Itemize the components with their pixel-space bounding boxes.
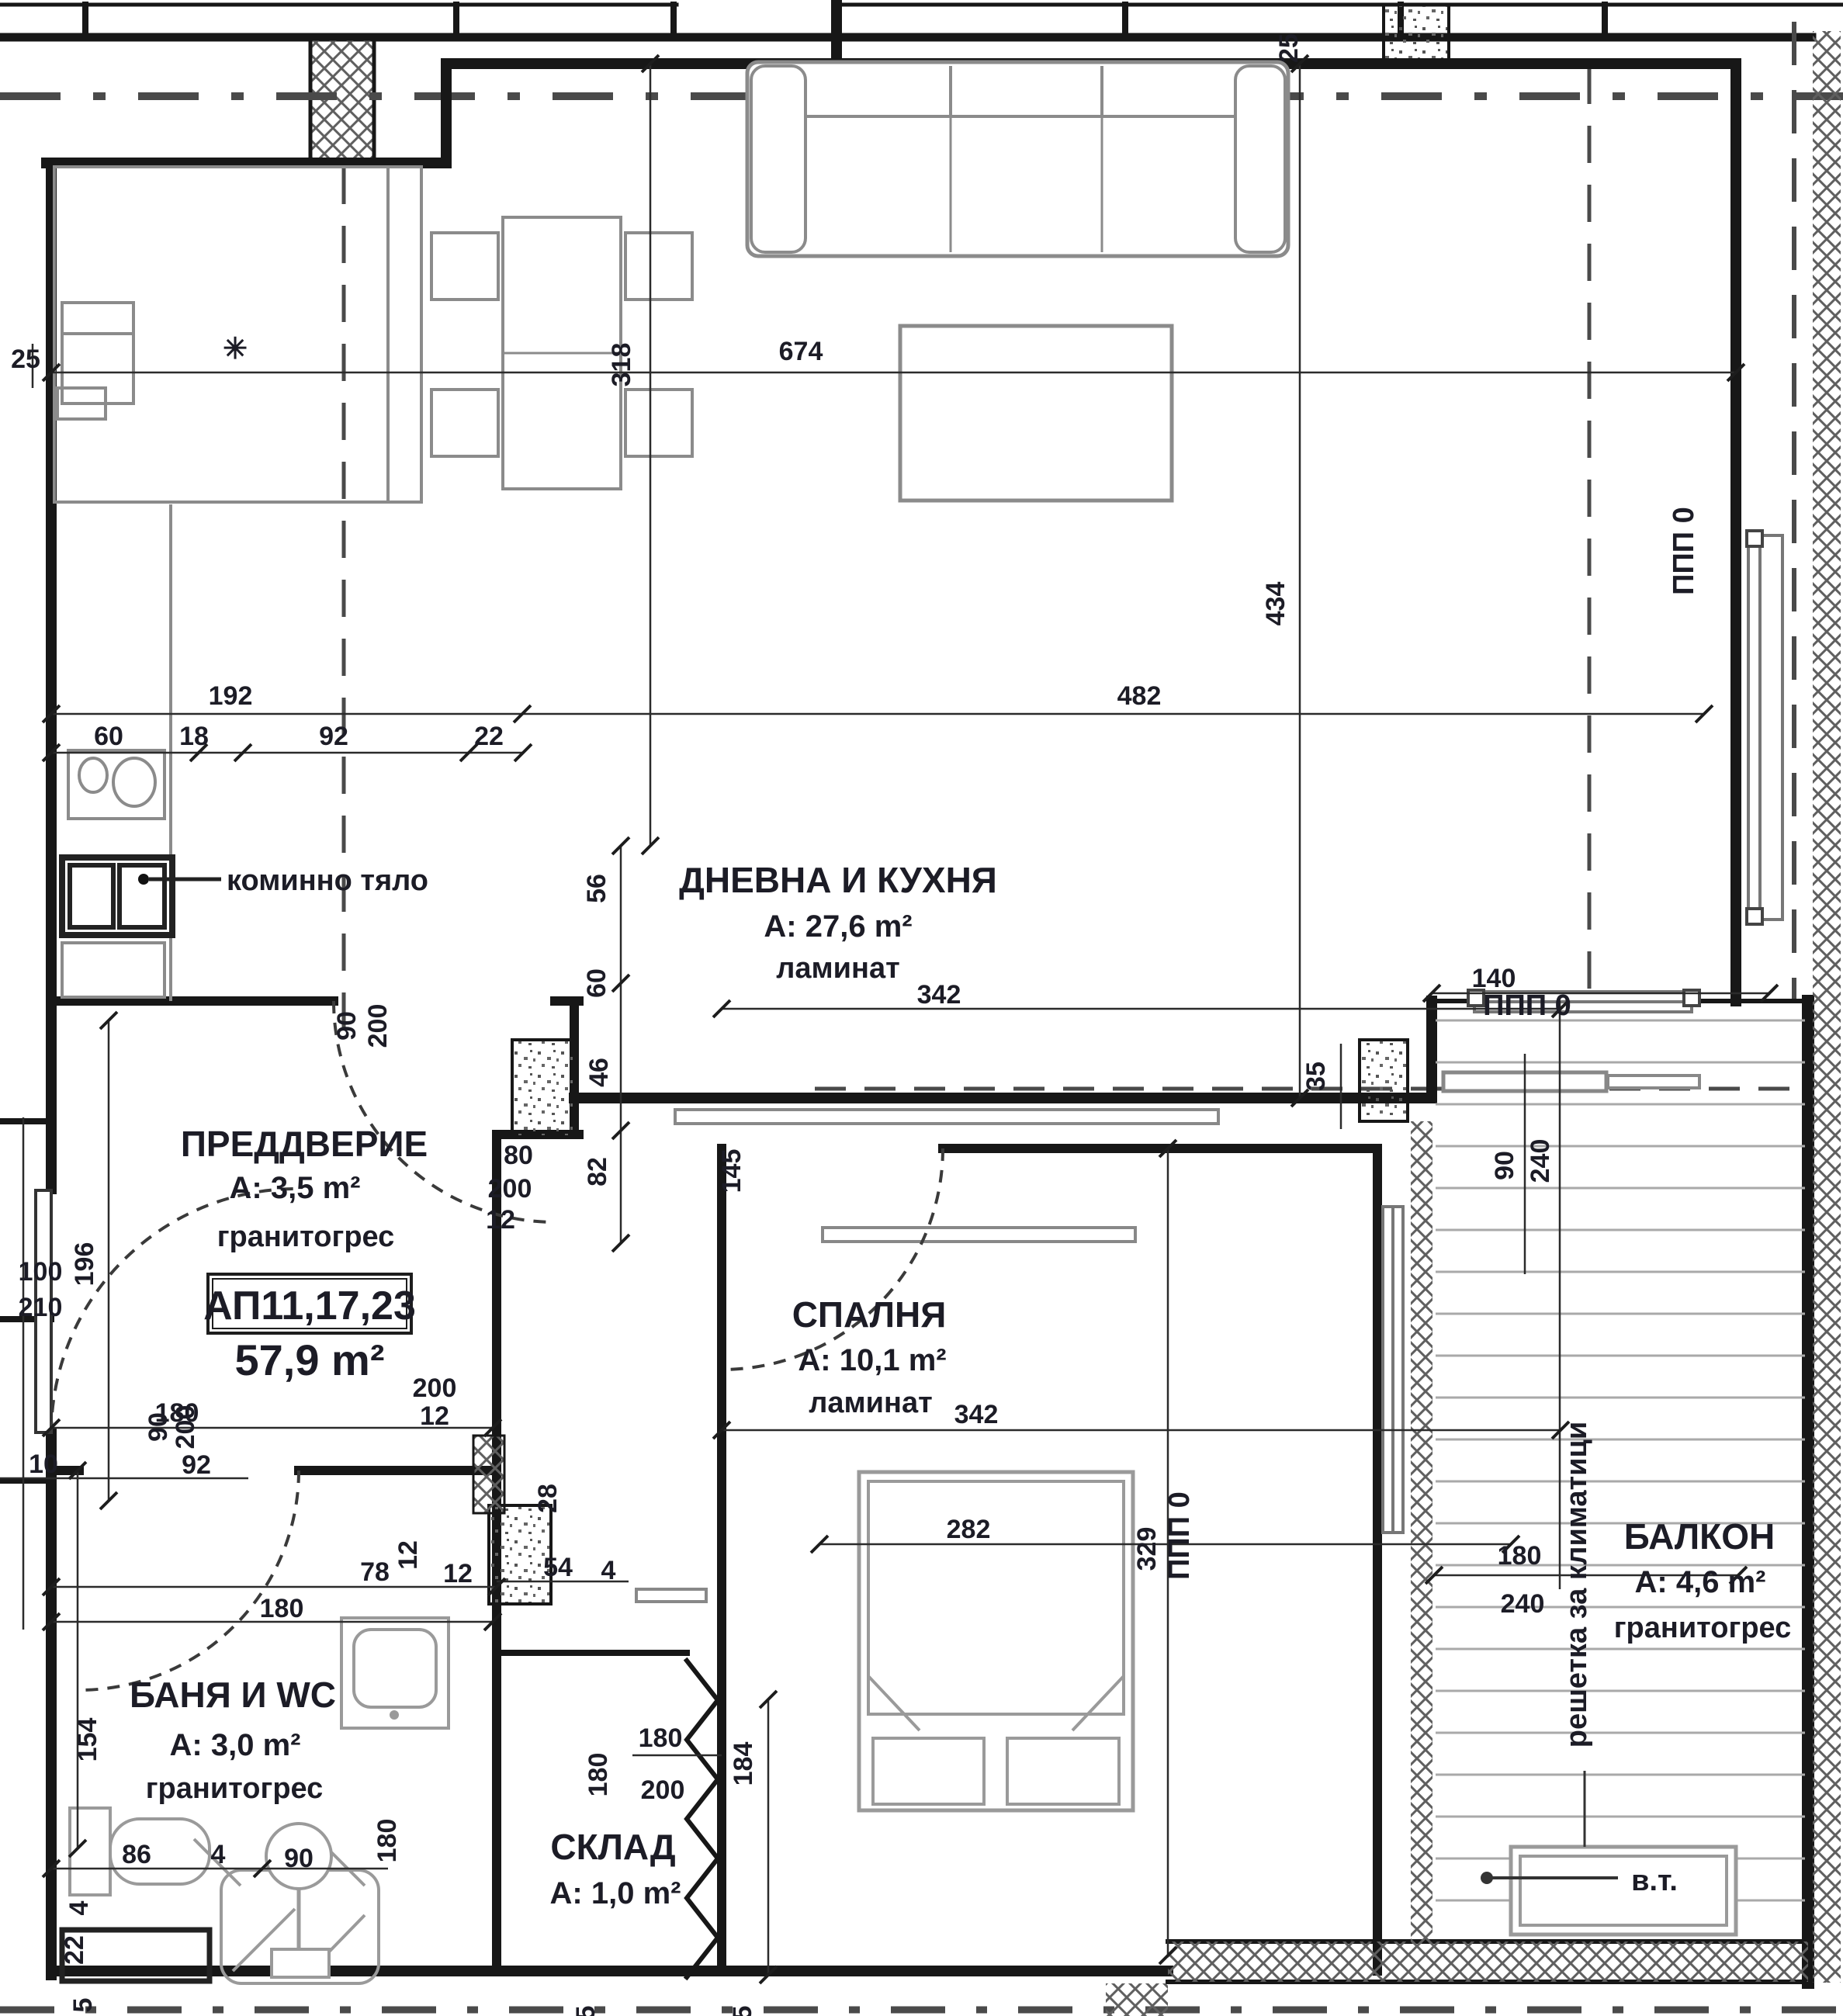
dim-label: 12 bbox=[393, 1540, 423, 1570]
dining-set bbox=[431, 217, 692, 489]
dim-label: 90 bbox=[284, 1844, 314, 1873]
chair bbox=[625, 390, 692, 456]
dim-label: 25 bbox=[11, 345, 40, 374]
chair bbox=[431, 390, 498, 456]
room-name-hall: ПРЕДДВЕРИЕ bbox=[181, 1124, 428, 1164]
pillow bbox=[1007, 1738, 1119, 1804]
dim-label: 46 bbox=[584, 1058, 614, 1087]
dim-label: 100 bbox=[19, 1257, 63, 1287]
dim-label: 60 bbox=[582, 968, 611, 998]
dim-label: 180 bbox=[1498, 1541, 1542, 1571]
dim-label: 318 bbox=[607, 343, 636, 387]
dim-label: 196 bbox=[70, 1242, 99, 1287]
chair bbox=[431, 233, 498, 300]
dim-label: 4 bbox=[211, 1840, 226, 1869]
room-floor-living: ламинат bbox=[776, 952, 899, 985]
water-point-label: в.т. bbox=[1631, 1865, 1678, 1897]
dim-label: 90 bbox=[332, 1011, 362, 1041]
room-area-balcony: A: 4,6 m² bbox=[1635, 1565, 1766, 1599]
dim-label: 180 bbox=[260, 1594, 304, 1623]
hatched-pier-bedroom bbox=[1411, 1121, 1432, 1944]
floor-plan-drawing: ✳ bbox=[0, 0, 1843, 2016]
dim-label: 5 bbox=[571, 2006, 601, 2016]
dim-label: 674 bbox=[779, 337, 823, 366]
room-area-storage: A: 1,0 m² bbox=[550, 1876, 681, 1910]
window-mark-living: ППП 0 bbox=[1483, 989, 1571, 1022]
kitchen-cabinet bbox=[62, 943, 165, 997]
room-floor-bath: гранитогрес bbox=[146, 1772, 324, 1805]
dim-label: 154 bbox=[73, 1718, 102, 1762]
dim-label: 22 bbox=[474, 722, 504, 751]
dim-label: 12 bbox=[420, 1401, 449, 1431]
dim-label: 180 bbox=[584, 1753, 613, 1797]
kitchen-sink bbox=[62, 857, 172, 935]
dim-label: 4 bbox=[601, 1556, 616, 1585]
dim-label: 10 bbox=[29, 1450, 58, 1479]
dim-label: 482 bbox=[1117, 681, 1162, 711]
external-insulation-right bbox=[1813, 31, 1841, 1983]
dim-label: 12 bbox=[443, 1559, 473, 1588]
speckled-pier-balcony bbox=[1360, 1040, 1408, 1121]
dim-label: 12 bbox=[486, 1205, 515, 1235]
planter bbox=[1481, 1847, 1736, 1935]
dim-label: 210 bbox=[19, 1293, 63, 1322]
room-name-living: ДНЕВНА И КУХНЯ bbox=[679, 860, 997, 900]
dim-label: 180 bbox=[372, 1819, 402, 1863]
apartment-number: АП11,17,23 bbox=[203, 1283, 416, 1328]
dim-label: 5 bbox=[728, 2006, 757, 2016]
windows bbox=[636, 531, 1782, 1602]
dimension-labels: 25 25 318 674 434 192 482 60 18 92 22 56… bbox=[11, 33, 1555, 2016]
dim-label: 90 bbox=[144, 1412, 173, 1442]
chair bbox=[625, 233, 692, 300]
hatch-stub bbox=[1106, 1983, 1168, 2016]
pillow bbox=[873, 1738, 984, 1804]
chimney-label: коминно тяло bbox=[227, 864, 428, 897]
speckled-pier-storage bbox=[489, 1505, 551, 1604]
dim-label: 200 bbox=[641, 1775, 685, 1805]
window-mark-right: ППП 0 bbox=[1668, 507, 1700, 595]
coffee-table bbox=[900, 326, 1172, 501]
sofa bbox=[747, 62, 1288, 256]
bed bbox=[859, 1472, 1133, 1810]
dim-label: 25 bbox=[1274, 33, 1304, 63]
floor-plan-sheet: ✳ bbox=[0, 0, 1843, 2016]
window-bedroom-balcony bbox=[1383, 1207, 1403, 1533]
apartment-total-area: 57,9 m² bbox=[235, 1335, 385, 1384]
room-floor-bedroom: ламинат bbox=[809, 1387, 932, 1419]
room-name-bath: БАНЯ И WC bbox=[130, 1675, 336, 1715]
fridge-asterisk: ✳ bbox=[223, 333, 248, 365]
door-handle bbox=[636, 1589, 706, 1602]
dim-label: 282 bbox=[947, 1515, 991, 1544]
dim-label: 4 bbox=[64, 1900, 94, 1915]
window-right-wall bbox=[1747, 531, 1782, 924]
room-floor-hall: гранитогрес bbox=[217, 1221, 395, 1253]
room-area-hall: A: 3,5 m² bbox=[230, 1171, 361, 1205]
dim-label: 86 bbox=[122, 1840, 151, 1869]
dim-label: 18 bbox=[179, 722, 209, 751]
dim-label: 92 bbox=[182, 1450, 211, 1480]
dim-label: 240 bbox=[1526, 1139, 1555, 1183]
speckled-column bbox=[1384, 5, 1449, 64]
dim-label: 82 bbox=[583, 1157, 612, 1186]
bedroom-door-arc bbox=[722, 1148, 943, 1370]
dim-label: 240 bbox=[1501, 1589, 1545, 1619]
dim-label: 200 bbox=[413, 1373, 457, 1403]
speckled-pier-hall bbox=[512, 1040, 574, 1137]
bath-door-arc bbox=[79, 1470, 299, 1690]
room-name-storage: СКЛАД bbox=[550, 1827, 675, 1867]
room-area-living: A: 27,6 m² bbox=[764, 909, 912, 944]
dim-label: 200 bbox=[488, 1174, 532, 1204]
dim-label: 80 bbox=[504, 1141, 533, 1170]
dim-label: 54 bbox=[543, 1553, 573, 1582]
dim-label: 90 bbox=[1490, 1151, 1519, 1180]
room-name-bedroom: СПАЛНЯ bbox=[792, 1294, 947, 1335]
window-mark-bedroom: ППП 0 bbox=[1163, 1491, 1196, 1580]
ac-grille-label: решетка за климатици bbox=[1561, 1422, 1593, 1748]
hatched-pier-bath bbox=[473, 1436, 504, 1513]
dim-label: 200 bbox=[363, 1004, 393, 1048]
dim-label: 342 bbox=[917, 980, 961, 1010]
room-area-bath: A: 3,0 m² bbox=[170, 1728, 301, 1762]
dim-label: 60 bbox=[94, 722, 123, 751]
dim-label: 329 bbox=[1132, 1527, 1162, 1571]
dim-label: 78 bbox=[360, 1557, 390, 1587]
dim-label: 22 bbox=[60, 1935, 89, 1965]
dim-label: 28 bbox=[533, 1484, 563, 1513]
room-area-bedroom: A: 10,1 m² bbox=[798, 1343, 946, 1377]
dim-label: 342 bbox=[954, 1400, 999, 1429]
sliding-door-balcony bbox=[1443, 1072, 1699, 1091]
dim-label: 56 bbox=[582, 874, 611, 903]
dim-label: 92 bbox=[319, 722, 348, 751]
dim-label: 184 bbox=[729, 1742, 758, 1786]
dim-label: 180 bbox=[639, 1723, 683, 1753]
dim-label: 200 bbox=[171, 1405, 200, 1450]
room-name-balcony: БАЛКОН bbox=[1624, 1516, 1775, 1557]
room-floor-balcony: гранитогрес bbox=[1614, 1612, 1792, 1644]
dim-label: 35 bbox=[1301, 1062, 1331, 1091]
dim-label: 145 bbox=[717, 1149, 747, 1193]
dim-label: 5 bbox=[68, 1998, 98, 2013]
dim-label: 434 bbox=[1261, 582, 1290, 626]
external-insulation-bottom bbox=[1168, 1942, 1808, 1982]
washbasin bbox=[341, 1618, 449, 1728]
dim-label: 192 bbox=[209, 681, 253, 711]
accordion-door-storage bbox=[687, 1661, 718, 1977]
